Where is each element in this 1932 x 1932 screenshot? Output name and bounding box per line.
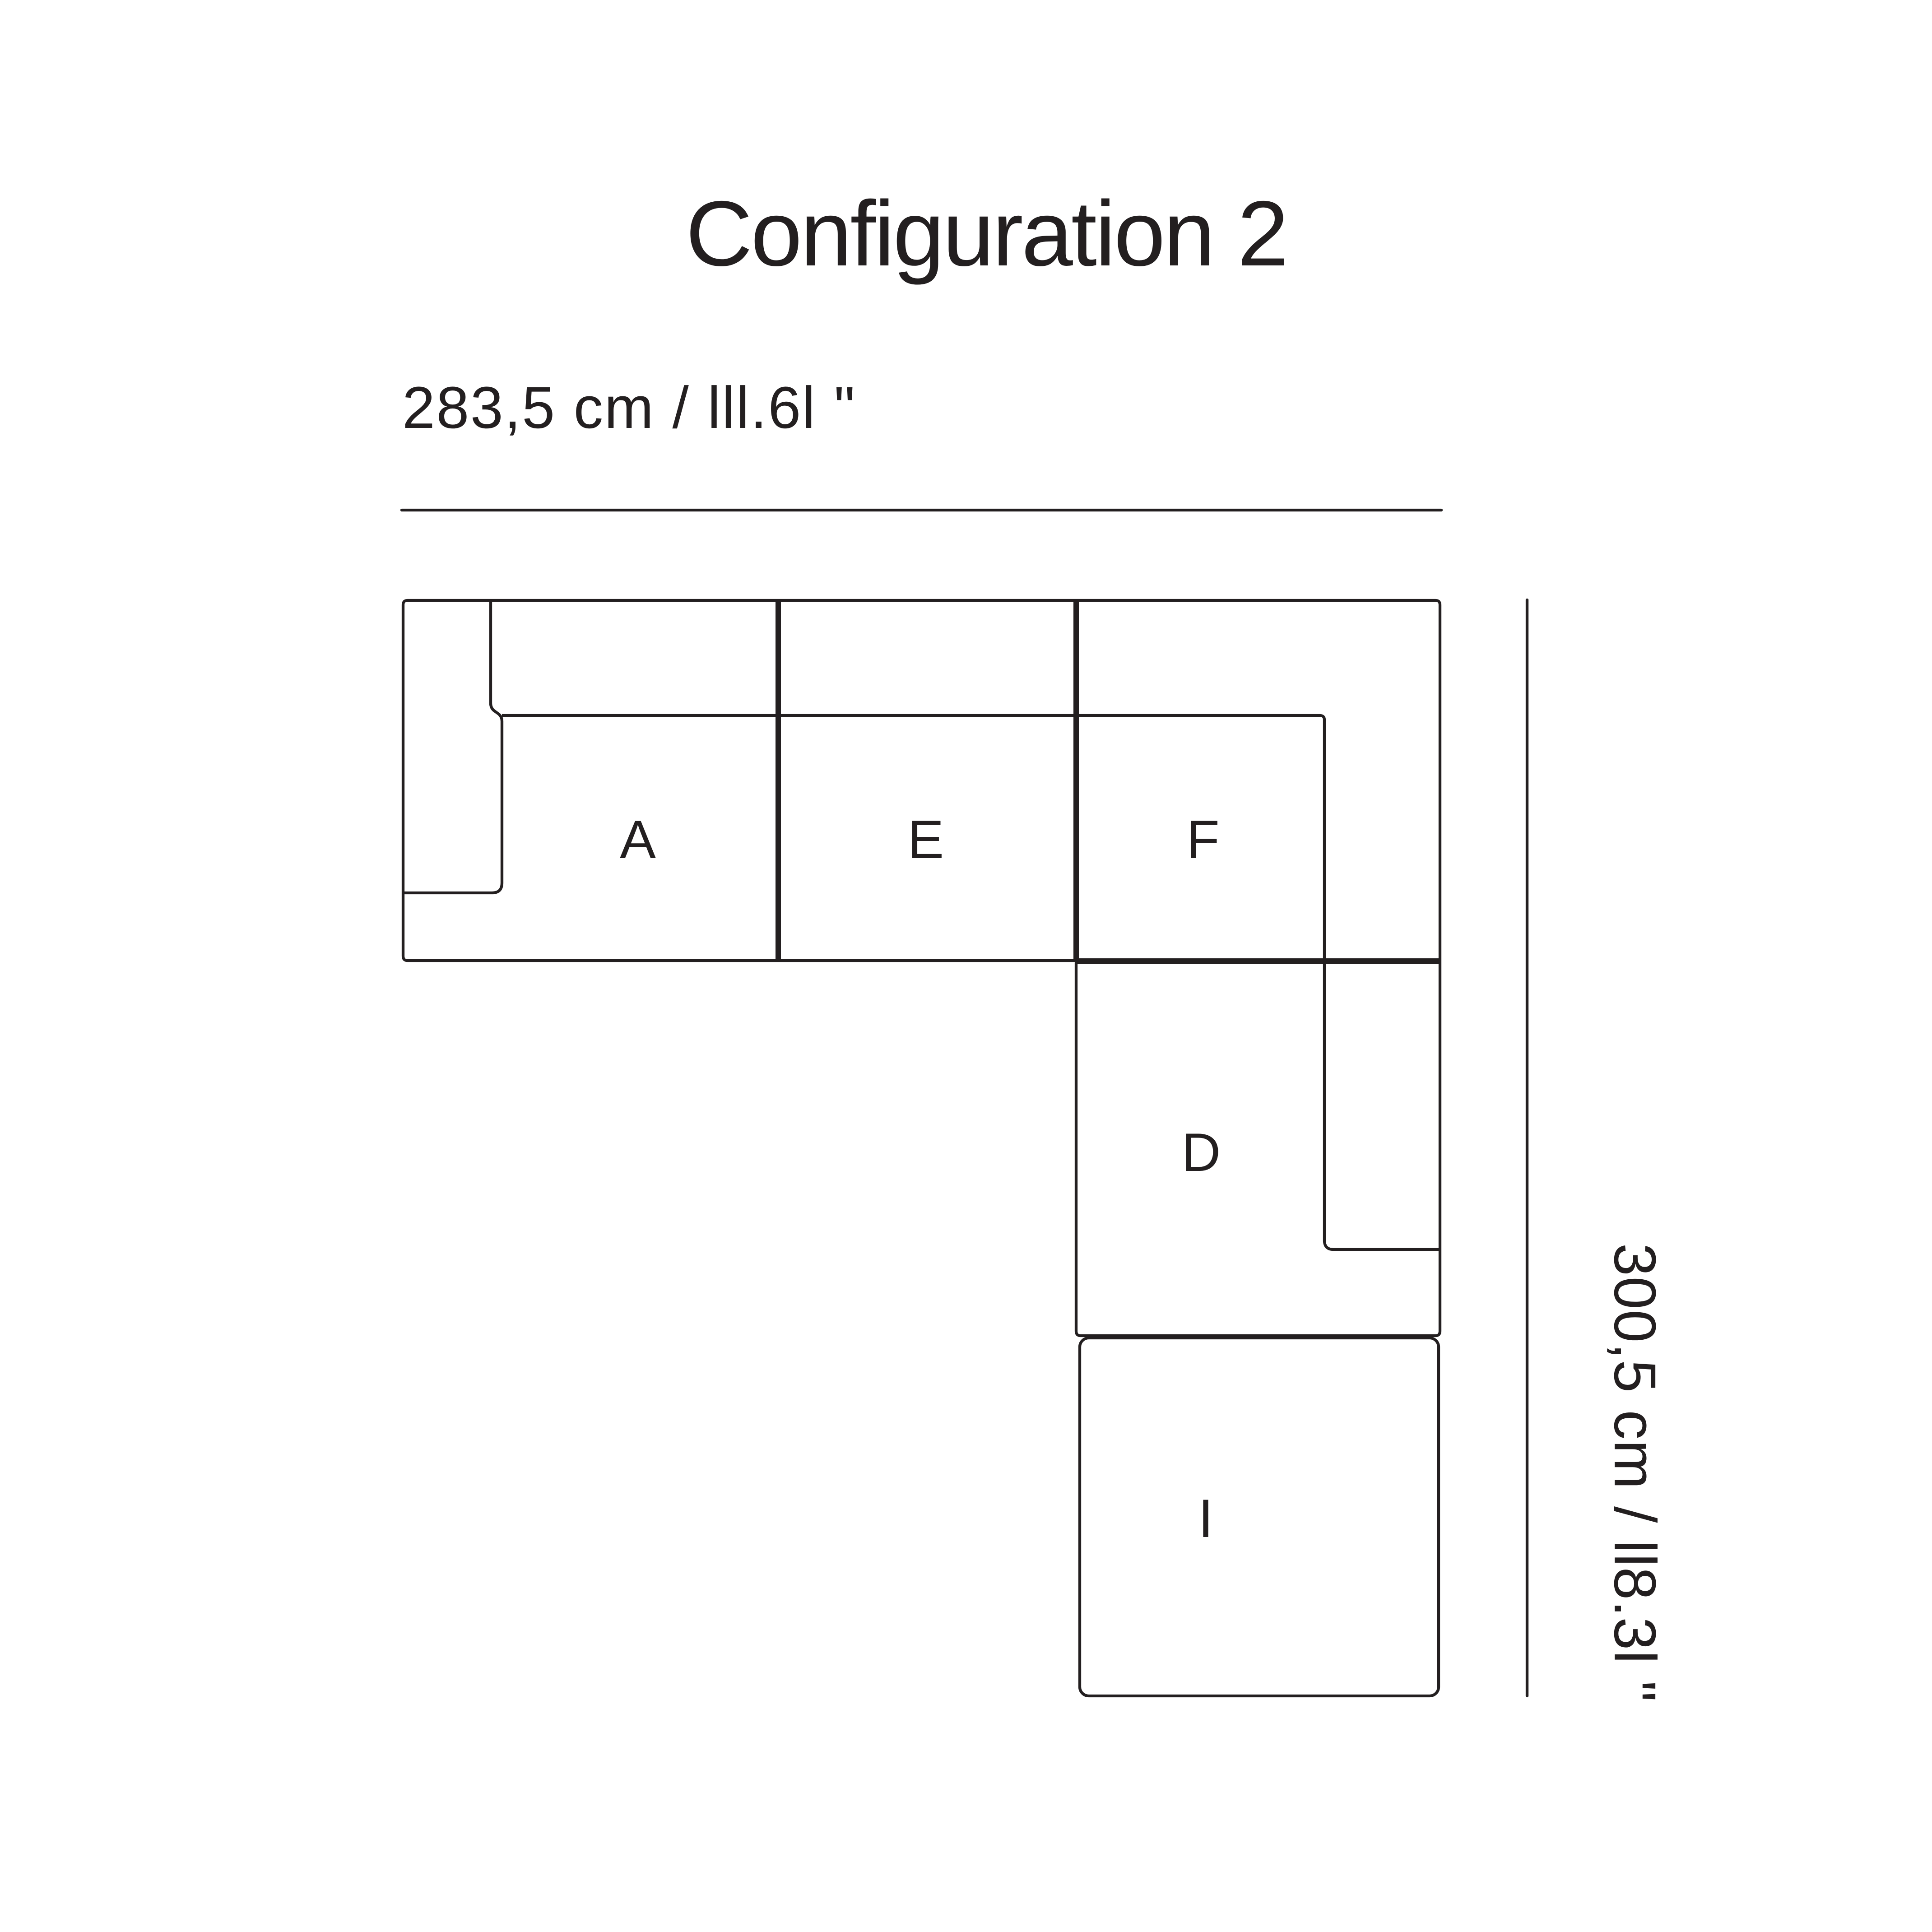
- svg-text:F: F: [1186, 809, 1219, 870]
- svg-text:Configuration 2: Configuration 2: [686, 182, 1289, 285]
- svg-text:283,5 cm / lll.6l ": 283,5 cm / lll.6l ": [402, 374, 855, 441]
- svg-text:I: I: [1198, 1488, 1213, 1549]
- svg-text:D: D: [1182, 1122, 1221, 1183]
- svg-text:300,5 cm / ll8.3l ": 300,5 cm / ll8.3l ": [1602, 1243, 1668, 1702]
- svg-text:E: E: [908, 809, 944, 870]
- svg-text:A: A: [620, 809, 656, 870]
